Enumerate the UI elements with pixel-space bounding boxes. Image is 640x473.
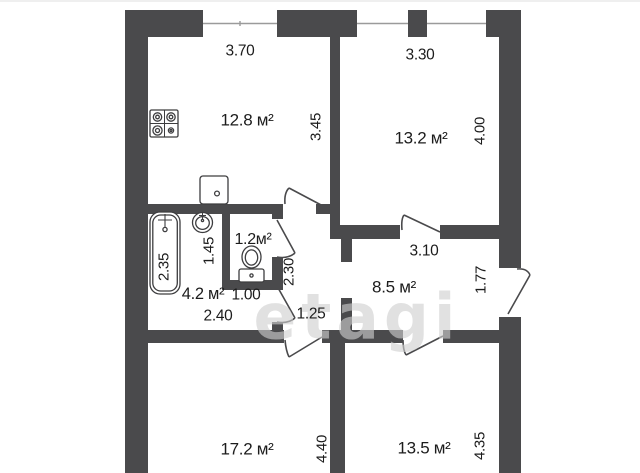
- label-kitchen-area: 12.8 м²: [220, 112, 273, 129]
- wall-kitchen-south-right: [316, 204, 331, 214]
- dim-bathroom-height: 2.35: [157, 253, 172, 281]
- floor-plan-drawing: [0, 0, 640, 473]
- wall-hallway-north-left: [330, 225, 400, 239]
- dim-kitchen-width: 3.70: [226, 43, 255, 59]
- wall-kitchen-room-divider: [330, 37, 340, 239]
- wall-exterior-right-lower: [499, 317, 521, 473]
- dim-kitchen-height: 3.45: [309, 113, 324, 141]
- dim-wc-width: 1.00: [232, 287, 261, 303]
- dim-hallway-width: 3.10: [410, 243, 439, 259]
- door-arc-wc: [277, 220, 295, 258]
- label-room-13-2-area: 13.2 м²: [394, 130, 447, 147]
- entrance-door-arc: [508, 269, 530, 314]
- dim-corridor-height: 2.30: [282, 258, 297, 286]
- washbasin-icon: [193, 213, 213, 233]
- label-hallway-area: 8.5 м²: [372, 279, 416, 296]
- watermark: etagi: [253, 281, 460, 354]
- stove-icon: [150, 110, 178, 137]
- walls: [125, 10, 521, 473]
- label-bathroom-area: 4.2 м²: [182, 286, 225, 303]
- window-kitchen: [203, 10, 277, 37]
- toilet-icon: [239, 246, 264, 282]
- label-room-17-2-area: 17.2 м²: [220, 441, 273, 458]
- dim-bathroom-width: 2.40: [204, 308, 233, 324]
- wall-exterior-right-upper: [499, 10, 521, 268]
- wall-lower-rooms-divider: [330, 343, 345, 473]
- floor-plan: etagi 3.70 12.8 м² 3.45 3.30 13.2 м² 4.0…: [0, 0, 640, 473]
- door-arc-kitchen: [285, 188, 323, 206]
- kitchen-sink-icon: [200, 176, 228, 204]
- wall-wc-left: [222, 204, 230, 290]
- dim-bathroom-inner-height: 1.45: [202, 237, 217, 265]
- label-room-13-5-area: 13.5 м²: [397, 440, 450, 457]
- window-room-13-2-left: [357, 10, 408, 37]
- wall-exterior-left: [125, 10, 148, 473]
- wall-hallway-north-right: [440, 225, 499, 239]
- dim-hallway-height: 1.77: [474, 266, 489, 294]
- dim-room-13-2-width: 3.30: [406, 47, 435, 63]
- label-wc-area: 1.2м²: [234, 232, 271, 248]
- dim-room-13-5-height: 4.35: [473, 432, 488, 460]
- dim-room-13-2-height: 4.00: [473, 117, 488, 145]
- window-room-13-2-right: [427, 10, 486, 37]
- wall-center-top: [272, 204, 283, 219]
- dim-room-17-2-height: 4.40: [315, 435, 330, 463]
- door-arc-room-13-2: [402, 215, 440, 232]
- dim-corridor-width: 1.25: [297, 306, 326, 322]
